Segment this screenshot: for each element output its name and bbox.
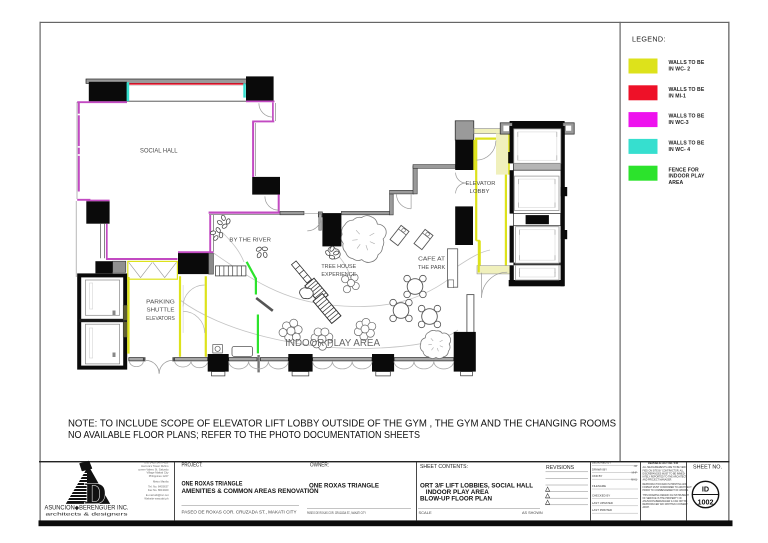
svg-text:ARCH.: ARCH.: [643, 506, 651, 509]
svg-text:ONE ROXAS TRIANGLE: ONE ROXAS TRIANGLE: [309, 482, 379, 489]
svg-text:IN WC-3: IN WC-3: [669, 120, 689, 126]
svg-text:REPRODUCED W/O WRITTEN CONS: REPRODUCED W/O WRITTEN CONSENT: [643, 504, 689, 506]
svg-text:OF SERVICE IS THE PROPERTY: OF SERVICE IS THE PROPERTY OF: [643, 498, 683, 500]
svg-text:CAFE AT: CAFE AT: [418, 257, 446, 263]
svg-text:REPUBLIC ACT No. 545: REPUBLIC ACT No. 545: [648, 461, 679, 465]
svg-text:LAST UPDATED: LAST UPDATED: [592, 501, 613, 505]
svg-text:LAST PRINTED: LAST PRINTED: [592, 508, 612, 512]
svg-text:ELEVATOR: ELEVATOR: [466, 181, 496, 187]
svg-text:OWNER:: OWNER:: [310, 463, 329, 469]
svg-text:Village Makati City: Village Makati City: [146, 471, 169, 475]
svg-text:Philippines 1227: Philippines 1227: [149, 474, 169, 478]
svg-text:WALLS TO BE: WALLS TO BE: [669, 60, 705, 66]
svg-text:NO AVAILABLE FLOOR PLANS; REFE: NO AVAILABLE FLOOR PLANS; REFER TO THE P…: [68, 430, 420, 441]
svg-text:IN MI-1: IN MI-1: [669, 93, 686, 99]
svg-text:PASEO DE ROXAS COR. CRUZADA ST: PASEO DE ROXAS COR. CRUZADA ST., MAKATI …: [307, 511, 367, 515]
svg-text:THIS DRAWING REMAIN AS INSTRUM: THIS DRAWING REMAIN AS INSTRUMENT: [643, 494, 690, 497]
svg-text:ID: ID: [702, 485, 709, 494]
svg-text:LOBBY: LOBBY: [470, 189, 490, 195]
svg-text:WALLS TO BE: WALLS TO BE: [669, 87, 705, 93]
svg-text:IN WC- 2: IN WC- 2: [669, 67, 691, 73]
svg-text:DESIGNED BY: DESIGNED BY: [592, 461, 611, 465]
svg-text:IN WC- 4: IN WC- 4: [669, 147, 691, 153]
svg-text:WALLS TO BE: WALLS TO BE: [669, 114, 705, 120]
svg-text:ASUNCION-BERENGUER & CAN NOT: ASUNCION-BERENGUER & CAN NOT BE: [643, 500, 688, 503]
svg-text:CKD BY: CKD BY: [592, 474, 603, 478]
svg-text:EXPERIENCE: EXPERIENCE: [321, 272, 356, 278]
svg-text:1002: 1002: [698, 498, 714, 507]
svg-text:AMENITIES & COMMON AREAS RENOV: AMENITIES & COMMON AREAS RENOVATION: [182, 488, 320, 495]
svg-text:SHUTTLE: SHUTTLE: [147, 308, 175, 314]
svg-text:INDOOR PLAY: INDOOR PLAY: [669, 174, 706, 180]
svg-text:Website www.abi.ph: Website www.abi.ph: [144, 497, 169, 501]
svg-text:E-mail abi@inc.net: E-mail abi@inc.net: [146, 493, 169, 497]
svg-text:AND PROJECT MANAGER.: AND PROJECT MANAGER.: [643, 478, 673, 481]
svg-text:NOTE: TO INCLUDE SCOPE OF ELEV: NOTE: TO INCLUDE SCOPE OF ELEVATOR LIFT …: [68, 419, 616, 430]
svg-text:PARKING: PARKING: [146, 300, 175, 306]
svg-text:REPRODUCTION AND IN PRINTING: REPRODUCTION AND IN PRINTING AND: [643, 483, 688, 486]
svg-text:Metro Manila: Metro Manila: [153, 479, 169, 483]
svg-text:ONE ROXAS TRIANGLE: ONE ROXAS TRIANGLE: [182, 481, 243, 488]
svg-text:PROJECT:: PROJECT:: [182, 463, 203, 469]
svg-text:DISCREPANCIES MUST TO BE IMM: DISCREPANCIES MUST TO BE IMMED-: [643, 472, 686, 475]
svg-text:SHEET CONTENTS:: SHEET CONTENTS:: [420, 464, 468, 470]
svg-text:LEGEND:: LEGEND:: [632, 35, 666, 44]
svg-text:Fax No. 8013020: Fax No. 8013020: [148, 488, 169, 492]
svg-text:BY THE RIVER: BY THE RIVER: [229, 238, 271, 244]
svg-text:MHQ: MHQ: [631, 478, 637, 481]
svg-text:Herrera's Tower Rufino: Herrera's Tower Rufino: [141, 464, 169, 468]
svg-text:SHEET NO.: SHEET NO.: [693, 465, 722, 471]
svg-text:THE PARK: THE PARK: [418, 265, 445, 271]
svg-text:Tel. No. 8403637: Tel. No. 8403637: [148, 485, 169, 489]
svg-text:AREA: AREA: [669, 180, 684, 186]
svg-text:REVISIONS: REVISIONS: [546, 465, 574, 471]
svg-text:CHECKED BY: CHECKED BY: [592, 494, 610, 498]
svg-text:SCALE: SCALE: [419, 510, 432, 515]
svg-text:SOCIAL HALL: SOCIAL HALL: [140, 149, 178, 155]
svg-text:FORMAT MUST CONFIRMED TO ARCHI: FORMAT MUST CONFIRMED TO ARCHITECT: [643, 486, 693, 489]
svg-text:AS SHOWN: AS SHOWN: [522, 511, 543, 515]
svg-text:FILENAME: FILENAME: [592, 484, 606, 488]
svg-text:DRAWN BY: DRAWN BY: [592, 467, 607, 471]
svg-text:FENCE FOR: FENCE FOR: [669, 167, 700, 173]
svg-text:ALL MEASUREMENTS ARE TO BE VER: ALL MEASUREMENTS ARE TO BE VERI-: [643, 466, 687, 469]
svg-text:JM: JM: [634, 465, 637, 468]
svg-text:IATELY REPORTED TO THE ARCHITE: IATELY REPORTED TO THE ARCHITECT: [643, 475, 688, 478]
svg-text:corner Valero St. Salcedo: corner Valero St. Salcedo: [138, 467, 169, 471]
svg-text:Unit 1408 14th Floor: Unit 1408 14th Floor: [144, 461, 168, 465]
svg-text:ELEVATORS: ELEVATORS: [146, 316, 175, 322]
svg-text:PRIOR TO COMMENCEMENT OF WORKS: PRIOR TO COMMENCEMENT OF WORKS.: [643, 490, 690, 492]
svg-text:MHF: MHF: [632, 472, 638, 475]
svg-text:TREE HOUSE: TREE HOUSE: [321, 264, 356, 270]
svg-text:PASEO DE ROXAS COR. CRUZAD: PASEO DE ROXAS COR. CRUZADA ST., MAKATI …: [182, 510, 297, 515]
svg-text:BLOW-UP FLOOR PLAN: BLOW-UP FLOOR PLAN: [420, 496, 493, 503]
svg-text:INDOOR PLAY AREA: INDOOR PLAY AREA: [285, 338, 380, 349]
svg-text:architects & designers: architects & designers: [46, 511, 129, 516]
svg-text:FIED ON SITE BY CONTRACTOR.: FIED ON SITE BY CONTRACTOR. ALL: [643, 469, 685, 472]
svg-text:WALLS TO BE: WALLS TO BE: [669, 141, 705, 147]
